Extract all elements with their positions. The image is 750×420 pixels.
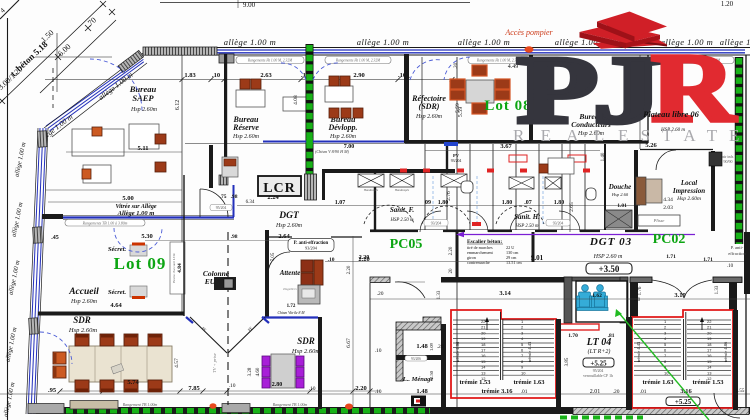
svg-text:Chism Vitrile 8 M: Chism Vitrile 8 M	[277, 311, 305, 315]
svg-text:20: 20	[449, 268, 454, 274]
svg-text:1.07: 1.07	[335, 200, 346, 206]
svg-text:22 21 20 19 18 17 16 15 14 13: 22 21 20 19 18 17 16 15 14 13 12	[481, 319, 487, 381]
svg-text:1.48: 1.48	[416, 343, 428, 350]
svg-text:1.70: 1.70	[568, 333, 578, 339]
svg-text:2.03: 2.03	[663, 205, 673, 211]
svg-text:6.12: 6.12	[175, 100, 181, 111]
svg-text:trémie 1.53: trémie 1.53	[459, 379, 491, 386]
svg-text:Hsp 2.60m: Hsp 2.60m	[415, 114, 443, 120]
svg-text:HSP 2.50 m: HSP 2.50 m	[515, 224, 539, 229]
svg-text:2.65: 2.65	[569, 202, 575, 212]
svg-text:4.84: 4.84	[177, 263, 183, 273]
svg-text:Handicapés: Handicapés	[394, 188, 410, 192]
svg-text:.95: .95	[48, 387, 57, 394]
svg-text:1.01: 1.01	[617, 203, 627, 209]
svg-text:1.80: 1.80	[438, 200, 449, 206]
svg-text:.07: .07	[524, 200, 532, 206]
svg-text:SAEP: SAEP	[132, 93, 154, 103]
svg-text:5.30: 5.30	[141, 233, 152, 240]
svg-text:1.33: 1.33	[437, 290, 442, 299]
svg-text:2.20: 2.20	[355, 385, 366, 392]
svg-text:.20: .20	[454, 62, 459, 69]
svg-text:effraction: effraction	[728, 251, 746, 256]
svg-text:09: 09	[425, 200, 431, 206]
svg-text:.45: .45	[51, 235, 59, 241]
svg-text:1.09: 1.09	[429, 342, 434, 351]
svg-text:Borne d'accueil LCR: Borne d'accueil LCR	[172, 253, 176, 283]
svg-text:Sécret.: Sécret.	[108, 289, 127, 296]
svg-text:.10: .10	[375, 389, 382, 395]
svg-text:+3.50: +3.50	[599, 264, 620, 274]
svg-text:2.20: 2.20	[347, 265, 352, 274]
svg-text:.01: .01	[521, 389, 528, 395]
svg-text:Accès pompier: Accès pompier	[504, 28, 553, 37]
svg-text:TV + prise: TV + prise	[212, 353, 217, 372]
svg-text:EU: EU	[204, 277, 216, 286]
svg-text:4.57: 4.57	[174, 358, 180, 368]
svg-text:1.40: 1.40	[601, 152, 606, 161]
svg-text:.98: .98	[231, 234, 238, 240]
svg-text:Hsp 2.60m: Hsp 2.60m	[130, 107, 158, 113]
svg-text:L.. Ménage: L.. Ménage	[402, 376, 434, 383]
svg-text:allège 1.00 m: allège 1.00 m	[458, 37, 511, 47]
svg-text:.10: .10	[375, 348, 382, 354]
svg-text:trémie 4.86: trémie 4.86	[723, 341, 728, 362]
svg-text:95/204: 95/204	[216, 206, 227, 210]
svg-text:.20: .20	[613, 389, 620, 395]
svg-text:3.67: 3.67	[500, 143, 512, 150]
svg-text:Hsp 2.60m: Hsp 2.60m	[232, 134, 260, 140]
svg-text:Sanit. F.: Sanit. F.	[390, 206, 414, 214]
svg-text:P. anti-: P. anti-	[731, 245, 744, 250]
svg-text:1.80: 1.80	[554, 200, 565, 206]
svg-text:13.51 cm: 13.51 cm	[506, 260, 522, 265]
svg-text:2.01: 2.01	[590, 389, 601, 395]
svg-text:93/204: 93/204	[305, 246, 318, 251]
svg-text:Réserve: Réserve	[232, 123, 259, 132]
svg-text:.01: .01	[640, 389, 647, 395]
svg-text:4.64: 4.64	[110, 302, 122, 309]
svg-text:E S T A T E: E S T A T E	[618, 126, 743, 145]
svg-text:Hsp 2.60m: Hsp 2.60m	[275, 223, 303, 229]
svg-text:1.48: 1.48	[416, 388, 428, 395]
svg-text:.10: .10	[212, 72, 220, 79]
svg-text:3.19: 3.19	[674, 292, 686, 299]
svg-text:trémie 4.43: trémie 4.43	[527, 341, 532, 362]
svg-text:Rangements TB 1.00 à 3.80m: Rangements TB 1.00 à 3.80m	[82, 222, 128, 226]
svg-text:Rangement TB 1.00m: Rangement TB 1.00m	[272, 402, 308, 407]
svg-text:verrouillable CF 1h: verrouillable CF 1h	[583, 374, 613, 378]
svg-text:9.01: 9.01	[531, 254, 544, 262]
svg-text:Rangement TB 1.00m: Rangement TB 1.00m	[122, 402, 158, 407]
svg-text:4.60: 4.60	[256, 367, 261, 376]
svg-text:Plisse: Plisse	[653, 218, 665, 223]
svg-text:Hsp 2.60m: Hsp 2.60m	[676, 196, 701, 202]
svg-text:SDR: SDR	[297, 336, 315, 346]
svg-text:.20: .20	[437, 344, 444, 350]
svg-text:.10: .10	[229, 383, 236, 389]
svg-text:3.28: 3.28	[248, 367, 253, 376]
svg-text:allège 1.00 m: allège 1.00 m	[357, 37, 410, 47]
svg-text:5.74: 5.74	[127, 379, 139, 386]
svg-text:2.63: 2.63	[260, 72, 272, 79]
svg-text:93/206: 93/206	[411, 357, 421, 361]
svg-text:5.11: 5.11	[137, 145, 148, 152]
svg-text:90/90: 90/90	[723, 159, 732, 164]
svg-text:.98: .98	[231, 194, 238, 200]
svg-text:Allège 1.00 m: Allège 1.00 m	[117, 210, 155, 217]
svg-text:HSP 2.50 m: HSP 2.50 m	[390, 218, 414, 223]
svg-text:Hsp 2.60m: Hsp 2.60m	[68, 327, 97, 334]
svg-text:Attente: Attente	[279, 269, 301, 277]
svg-text:.10: .10	[309, 386, 316, 392]
svg-text:1.71: 1.71	[666, 254, 676, 260]
svg-text:(Chism V 8/90 H M): (Chism V 8/90 H M)	[315, 149, 350, 154]
svg-text:1.72: 1.72	[287, 304, 296, 309]
svg-text:95/204: 95/204	[593, 369, 604, 373]
svg-text:1.83: 1.83	[184, 72, 196, 79]
svg-text:4.08: 4.08	[293, 95, 299, 105]
svg-text:93/204: 93/204	[553, 222, 564, 226]
svg-text:contremarche: contremarche	[467, 260, 490, 265]
svg-text:3.14: 3.14	[499, 290, 511, 297]
svg-text:PC02: PC02	[653, 232, 686, 247]
svg-text:.75: .75	[220, 194, 227, 200]
svg-text:trémie 4.43: trémie 4.43	[636, 341, 641, 362]
svg-text:Accueil: Accueil	[68, 287, 99, 297]
svg-text:1.62: 1.62	[592, 293, 602, 299]
svg-text:9.00: 9.00	[243, 1, 256, 9]
svg-text:PC05: PC05	[390, 237, 423, 252]
svg-text:Lot 09: Lot 09	[114, 254, 167, 273]
svg-text:6.34: 6.34	[246, 200, 255, 205]
svg-text:6.67: 6.67	[346, 338, 352, 348]
svg-text:93/204: 93/204	[431, 222, 442, 226]
svg-text:1.20: 1.20	[721, 0, 734, 8]
svg-text:2.20: 2.20	[449, 246, 454, 255]
svg-text:2.80: 2.80	[272, 382, 283, 388]
svg-text:Local: Local	[680, 179, 697, 187]
svg-text:HSP 2.60 m: HSP 2.60 m	[593, 254, 623, 260]
svg-text:Pagéliers: Pagéliers	[282, 287, 297, 291]
svg-text:DGT 03: DGT 03	[589, 236, 632, 248]
svg-text:4.34: 4.34	[663, 197, 673, 203]
svg-text:1.71: 1.71	[703, 257, 713, 263]
svg-text:3.85: 3.85	[565, 357, 570, 366]
svg-text:trémie 3.16: trémie 3.16	[481, 388, 513, 395]
svg-text:1.55: 1.55	[736, 389, 745, 394]
svg-text:Douche: Douche	[608, 183, 632, 191]
svg-text:7.85: 7.85	[188, 385, 200, 392]
svg-text:DGT: DGT	[278, 211, 300, 221]
svg-text:allège 1.00 m: allège 1.00 m	[224, 37, 277, 47]
svg-text:1.33: 1.33	[715, 285, 720, 294]
svg-text:2.90: 2.90	[353, 72, 364, 79]
svg-text:trémie 1.63: trémie 1.63	[513, 379, 545, 386]
svg-text:Sanit. H.: Sanit. H.	[514, 213, 540, 221]
svg-text:1.76: 1.76	[638, 286, 643, 295]
svg-text:Dévlopp.: Dévlopp.	[327, 123, 357, 132]
svg-text:.81: .81	[608, 333, 615, 339]
svg-text:Hsp 2.60m: Hsp 2.60m	[70, 299, 98, 305]
svg-text:trémie 1.63: trémie 1.63	[642, 379, 674, 386]
svg-text:.20: .20	[377, 291, 384, 297]
svg-text:22 21 20 19 18 17 16 15 14 13: 22 21 20 19 18 17 16 15 14 13 12	[707, 319, 713, 381]
svg-text:+5.25: +5.25	[590, 360, 607, 368]
svg-text:Hsp 2.60m: Hsp 2.60m	[329, 134, 357, 140]
svg-text:PV: PV	[453, 153, 460, 158]
svg-text:2.20: 2.20	[359, 255, 370, 261]
svg-text:1.80: 1.80	[502, 200, 513, 206]
svg-text:Hsp 2.60: Hsp 2.60	[611, 192, 629, 197]
svg-text:.10: .10	[727, 264, 734, 269]
svg-text:5.59: 5.59	[455, 103, 461, 113]
svg-text:+5.25: +5.25	[675, 398, 692, 406]
svg-text:trémie 4.08: trémie 4.08	[455, 341, 460, 362]
svg-text:SDR: SDR	[73, 315, 91, 325]
svg-text:.10: .10	[328, 257, 335, 263]
svg-text:Impression: Impression	[672, 187, 705, 195]
svg-text:R E A L: R E A L	[513, 126, 610, 145]
svg-text:Plateau libre 06: Plateau libre 06	[643, 109, 699, 119]
svg-text:5.00: 5.00	[122, 195, 133, 202]
svg-text:(LT R+2): (LT R+2)	[588, 348, 611, 355]
svg-text:(SDR): (SDR)	[419, 102, 440, 111]
svg-text:LCR: LCR	[263, 181, 296, 196]
svg-text:Handicapés: Handicapés	[363, 188, 379, 192]
svg-text:trémie 1.53: trémie 1.53	[692, 379, 724, 386]
svg-text:93/204: 93/204	[451, 159, 462, 163]
